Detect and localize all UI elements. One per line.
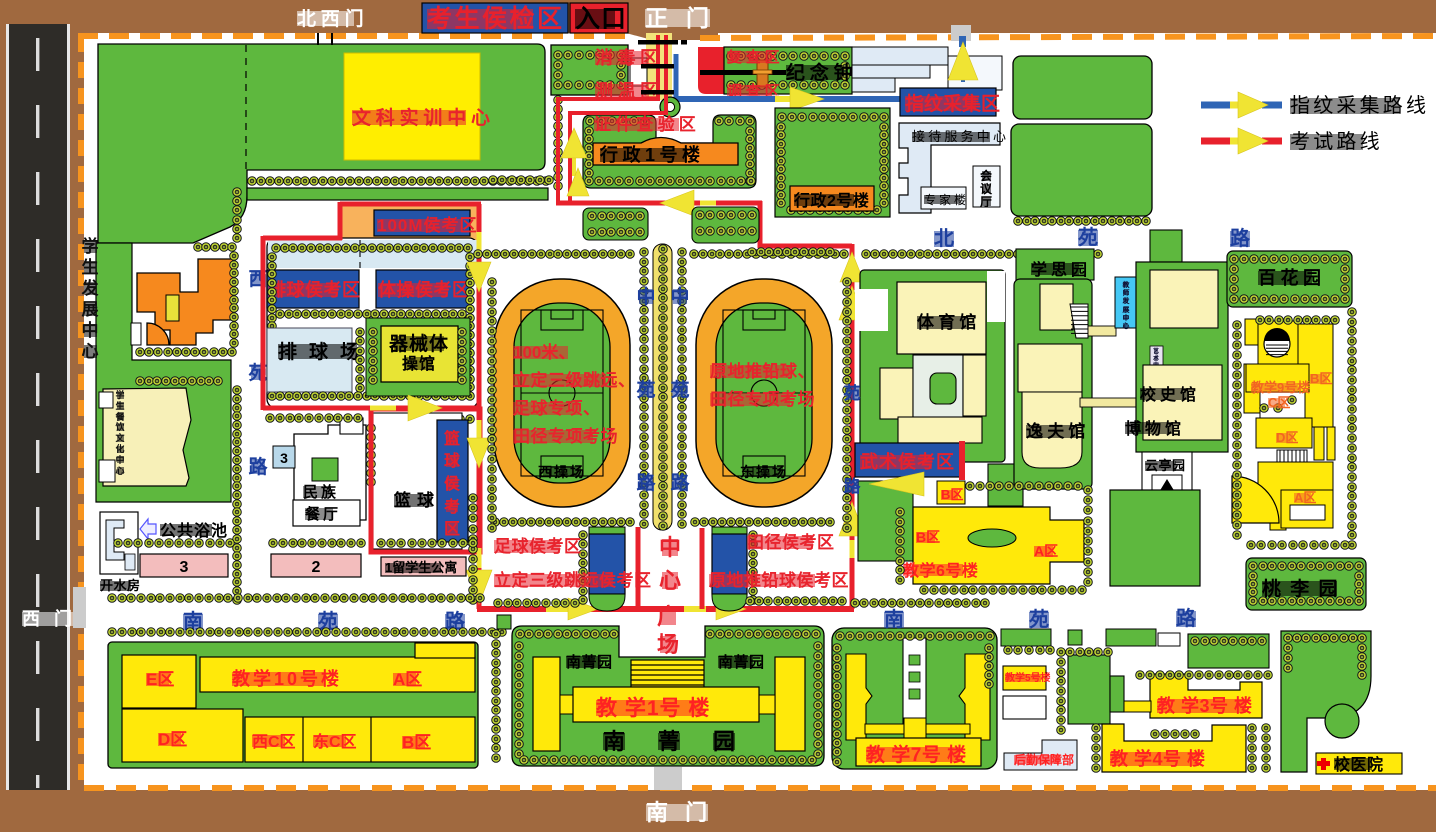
svg-text:路: 路 (636, 471, 656, 494)
svg-text:南菁园: 南菁园 (718, 653, 765, 671)
svg-text:田径专项考场: 田径专项考场 (513, 426, 618, 446)
svg-text:3: 3 (280, 450, 288, 466)
svg-text:开水房: 开水房 (100, 578, 141, 593)
svg-text:百花园: 百花园 (1258, 267, 1326, 288)
svg-text:中: 中 (670, 285, 689, 308)
svg-text:田径侯考区: 田径侯考区 (747, 532, 835, 552)
svg-text:生: 生 (82, 257, 99, 277)
svg-text:体育馆: 体育馆 (917, 312, 981, 332)
svg-text:南 门: 南 门 (646, 800, 713, 825)
svg-text:100M侯考区: 100M侯考区 (377, 215, 478, 235)
svg-text:原地推铅球侯考区: 原地推铅球侯考区 (709, 570, 849, 590)
svg-text:中: 中 (82, 320, 99, 340)
svg-text:指纹采集路线: 指纹采集路线 (1290, 94, 1429, 117)
svg-text:苑: 苑 (670, 378, 689, 401)
svg-text:后勤保障部: 后勤保障部 (1014, 752, 1074, 767)
svg-text:路: 路 (1230, 226, 1255, 250)
svg-text:路: 路 (670, 471, 690, 494)
svg-text:球: 球 (444, 451, 461, 470)
svg-text:校史馆: 校史馆 (1140, 385, 1200, 404)
svg-text:教学9号楼: 教学9号楼 (1250, 380, 1310, 395)
svg-text:入口: 入口 (575, 5, 627, 33)
svg-text:东操场: 东操场 (740, 464, 788, 480)
svg-text:餐: 餐 (114, 411, 125, 422)
svg-text:考生侯检区: 考生侯检区 (427, 4, 565, 33)
svg-text:西操场: 西操场 (538, 464, 586, 480)
svg-text:考: 考 (444, 497, 460, 516)
svg-text:教学5号楼: 教学5号楼 (1004, 671, 1051, 684)
svg-text:立定三级跳远、: 立定三级跳远、 (513, 370, 636, 390)
svg-text:教: 教 (1122, 280, 1131, 289)
svg-text:篮: 篮 (443, 429, 460, 448)
svg-text:西 门: 西 门 (22, 608, 77, 629)
svg-text:生: 生 (115, 400, 124, 411)
svg-text:专家楼: 专家楼 (924, 192, 969, 207)
svg-text:博物馆: 博物馆 (1125, 419, 1185, 438)
svg-text:B区: B区 (916, 529, 940, 545)
svg-text:西C区: 西C区 (252, 733, 296, 751)
svg-text:心: 心 (115, 466, 124, 476)
svg-text:B区: B区 (941, 487, 963, 502)
svg-text:C区: C区 (1268, 395, 1290, 410)
svg-text:指纹采集区: 指纹采集区 (905, 92, 1000, 115)
svg-text:100米、: 100米、 (513, 342, 575, 362)
svg-text:侯: 侯 (444, 474, 460, 493)
svg-text:器械体: 器械体 (388, 332, 449, 355)
svg-text:北: 北 (934, 227, 959, 250)
svg-text:教 学3号 楼: 教 学3号 楼 (1157, 695, 1253, 716)
svg-text:学: 学 (82, 236, 99, 256)
svg-text:园: 园 (713, 729, 741, 754)
svg-text:校医院: 校医院 (1334, 755, 1384, 774)
svg-text:学: 学 (115, 389, 124, 400)
svg-text:路: 路 (248, 455, 268, 478)
svg-text:东C区: 东C区 (313, 732, 357, 751)
svg-text:云亭园: 云亭园 (1145, 458, 1186, 473)
svg-text:中: 中 (115, 454, 124, 465)
svg-text:教 学7号 楼: 教 学7号 楼 (866, 743, 967, 766)
svg-text:路: 路 (844, 476, 862, 496)
svg-text:B区: B区 (402, 733, 431, 752)
svg-text:立定三级跳远侯考区: 立定三级跳远侯考区 (494, 570, 652, 590)
svg-text:南菁园: 南菁园 (566, 653, 613, 671)
svg-text:E区: E区 (146, 670, 174, 689)
svg-text:心: 心 (82, 342, 99, 361)
svg-text:发: 发 (1122, 296, 1131, 305)
svg-text:公共浴池: 公共浴池 (160, 521, 228, 540)
svg-text:民族: 民族 (303, 483, 339, 501)
svg-text:苑: 苑 (1029, 608, 1054, 631)
svg-text:心: 心 (659, 568, 681, 593)
svg-text:纪念钟: 纪念钟 (786, 61, 857, 84)
svg-text:考试路线: 考试路线 (1290, 130, 1383, 153)
svg-text:A区: A区 (1294, 490, 1316, 505)
svg-text:体操侯考区: 体操侯考区 (378, 279, 471, 300)
svg-text:1留学生公寓: 1留学生公寓 (385, 560, 457, 575)
svg-text:厅: 厅 (980, 195, 992, 209)
svg-text:篮球: 篮球 (393, 490, 440, 510)
svg-text:广: 广 (657, 604, 679, 629)
svg-text:A区: A区 (393, 670, 422, 689)
svg-text:教学6号楼: 教学6号楼 (903, 561, 978, 580)
svg-text:行政1号楼: 行政1号楼 (599, 144, 705, 165)
svg-text:排球侯考区: 排球侯考区 (268, 279, 361, 300)
svg-text:教 学1号 楼: 教 学1号 楼 (596, 696, 710, 720)
svg-text:术: 术 (1153, 354, 1159, 362)
svg-text:证件查验区: 证件查验区 (594, 114, 700, 134)
svg-text:足球侯考区: 足球侯考区 (494, 536, 582, 556)
svg-text:会: 会 (980, 168, 993, 183)
svg-text:文: 文 (114, 432, 125, 443)
svg-text:武术侯考区: 武术侯考区 (860, 451, 955, 472)
svg-text:场: 场 (657, 632, 679, 657)
svg-text:饮: 饮 (114, 421, 125, 432)
svg-text:行政2号楼: 行政2号楼 (793, 191, 869, 210)
svg-text:南: 南 (603, 729, 631, 754)
svg-text:化: 化 (115, 443, 124, 454)
svg-text:师: 师 (1123, 288, 1130, 297)
svg-text:教学10号楼: 教学10号楼 (232, 668, 342, 689)
svg-text:桃 李 园: 桃 李 园 (1262, 577, 1340, 600)
svg-text:逸夫馆: 逸夫馆 (1026, 421, 1090, 441)
svg-text:2: 2 (312, 559, 321, 576)
svg-text:苑: 苑 (636, 378, 655, 401)
svg-text:接待服务中心: 接待服务中心 (912, 129, 1009, 144)
svg-text:正 门: 正 门 (645, 5, 715, 31)
svg-text:展: 展 (82, 300, 99, 319)
svg-text:南: 南 (884, 608, 909, 631)
svg-text:操馆: 操馆 (402, 354, 436, 373)
svg-text:餐厅: 餐厅 (305, 505, 341, 523)
svg-text:A区: A区 (1034, 543, 1058, 559)
svg-text:中: 中 (1123, 313, 1130, 322)
svg-text:学思园: 学思园 (1031, 260, 1091, 279)
svg-text:原地推铅球、: 原地推铅球、 (710, 361, 815, 381)
svg-text:复查区: 复查区 (726, 48, 783, 66)
svg-text:菁: 菁 (658, 729, 686, 754)
svg-text:教 学4号 楼: 教 学4号 楼 (1110, 748, 1206, 769)
svg-text:田径专项考场: 田径专项考场 (710, 389, 815, 409)
svg-text:D区: D区 (1276, 430, 1298, 445)
svg-text:苑: 苑 (844, 383, 861, 403)
svg-text:B区: B区 (1310, 371, 1332, 386)
svg-text:心: 心 (1123, 321, 1130, 330)
svg-text:中: 中 (636, 285, 655, 308)
svg-text:足球专项、: 足球专项、 (513, 398, 601, 418)
svg-text:文科实训中心: 文科实训中心 (352, 106, 495, 129)
svg-text:D区: D区 (158, 730, 187, 749)
svg-text:中: 中 (659, 535, 681, 560)
svg-text:艺: 艺 (1153, 347, 1159, 355)
svg-text:路: 路 (1176, 606, 1201, 630)
svg-text:发: 发 (81, 278, 100, 298)
svg-text:北西门: 北西门 (297, 7, 368, 30)
svg-text:展: 展 (1122, 305, 1131, 314)
svg-text:苑: 苑 (1078, 226, 1103, 249)
svg-text:议: 议 (980, 181, 993, 196)
svg-text:3: 3 (180, 559, 189, 576)
svg-text:区: 区 (444, 520, 460, 538)
